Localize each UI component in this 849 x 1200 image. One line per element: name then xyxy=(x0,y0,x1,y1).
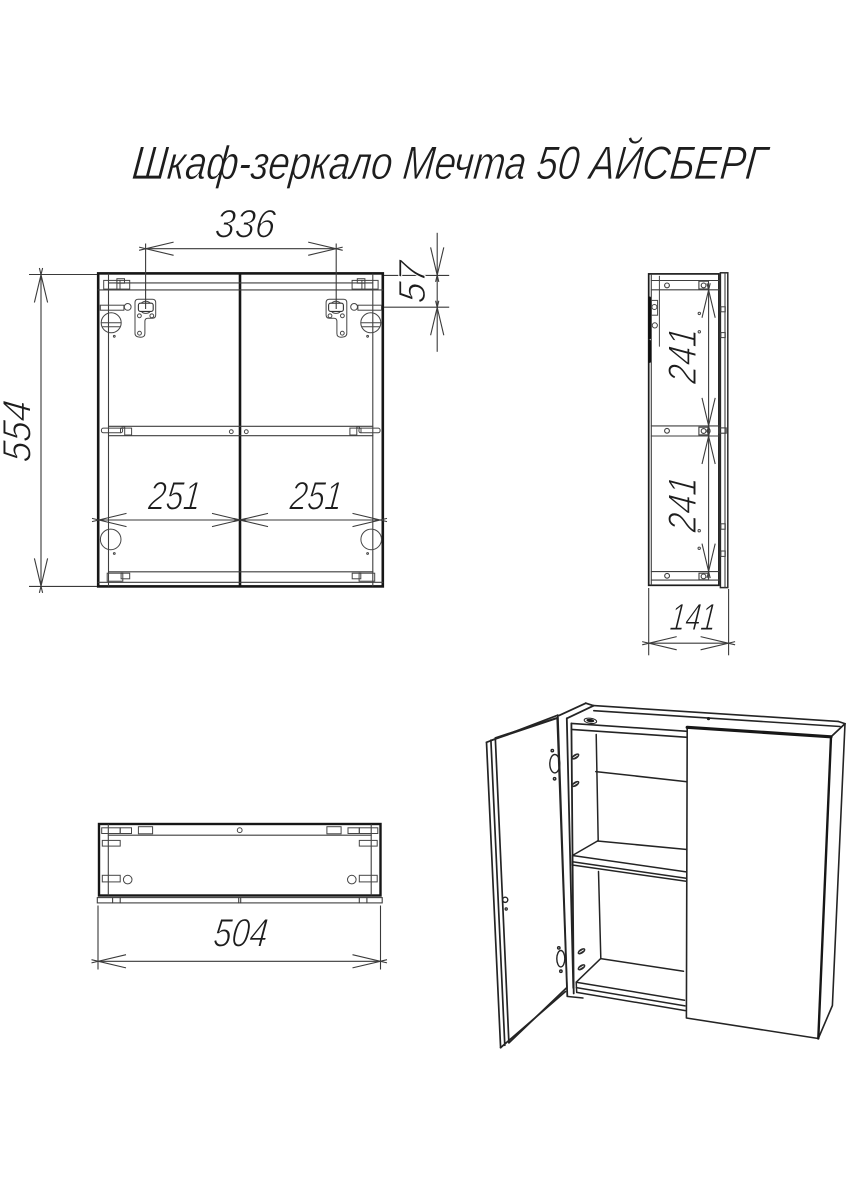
svg-text:241: 241 xyxy=(661,326,705,386)
svg-text:141: 141 xyxy=(668,597,718,639)
svg-text:241: 241 xyxy=(661,474,705,534)
svg-text:Шкаф-зеркало Мечта 50 АЙСБЕРГ: Шкаф-зеркало Мечта 50 АЙСБЕРГ xyxy=(130,136,772,189)
svg-text:57: 57 xyxy=(392,258,434,305)
svg-text:504: 504 xyxy=(212,912,271,956)
svg-text:251: 251 xyxy=(287,475,344,519)
svg-text:251: 251 xyxy=(146,475,203,519)
svg-text:554: 554 xyxy=(0,398,40,464)
svg-text:336: 336 xyxy=(213,203,278,247)
